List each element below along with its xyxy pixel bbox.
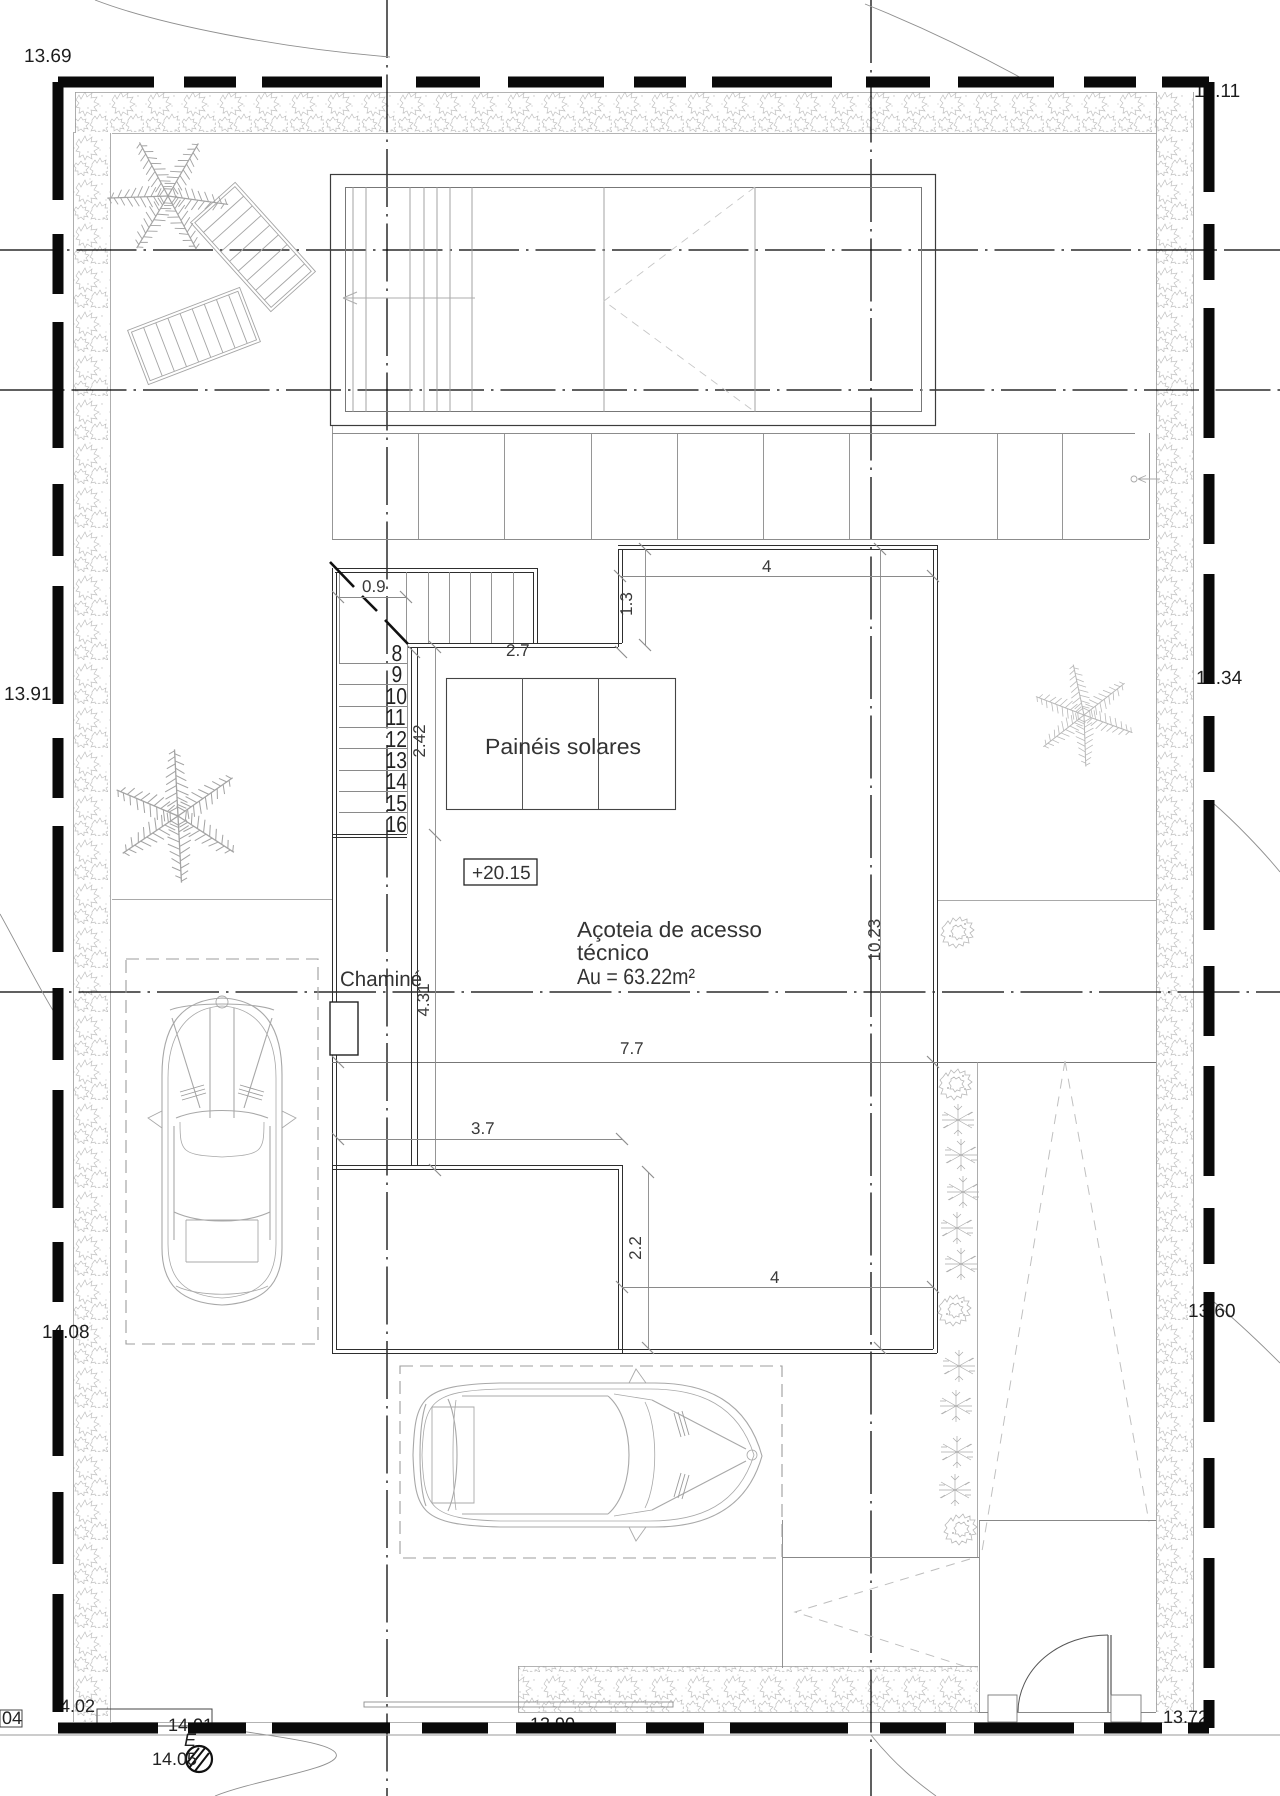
svg-text:7.7: 7.7 (620, 1039, 644, 1058)
svg-text:Painéis solares: Painéis solares (485, 734, 641, 759)
svg-text:16: 16 (386, 811, 407, 837)
svg-text:14.08: 14.08 (42, 1322, 90, 1343)
svg-text:4: 4 (770, 1268, 779, 1287)
svg-text:4.31: 4.31 (414, 983, 433, 1016)
svg-text:10.23: 10.23 (865, 919, 884, 962)
svg-text:13.91: 13.91 (4, 684, 52, 705)
svg-text:2.7: 2.7 (506, 641, 530, 660)
svg-text:04: 04 (2, 1708, 22, 1728)
svg-text:3.7: 3.7 (471, 1119, 495, 1138)
svg-text:técnico: técnico (577, 940, 649, 965)
svg-text:0.9: 0.9 (362, 577, 386, 596)
svg-text:4: 4 (762, 557, 771, 576)
svg-text:4.02: 4.02 (60, 1696, 95, 1716)
svg-text:2.42: 2.42 (410, 724, 429, 757)
svg-text:2.2: 2.2 (626, 1236, 645, 1260)
svg-text:Au = 63.22m²: Au = 63.22m² (577, 964, 695, 989)
svg-text:1.3: 1.3 (617, 592, 636, 616)
svg-text:13.69: 13.69 (24, 46, 72, 67)
svg-text:Açoteia de acesso: Açoteia de acesso (577, 917, 762, 942)
svg-text:Chaminé: Chaminé (340, 968, 422, 991)
svg-text:14.05: 14.05 (152, 1749, 197, 1769)
svg-text:+20.15: +20.15 (472, 863, 531, 884)
svg-text:11.34: 11.34 (1196, 668, 1243, 689)
